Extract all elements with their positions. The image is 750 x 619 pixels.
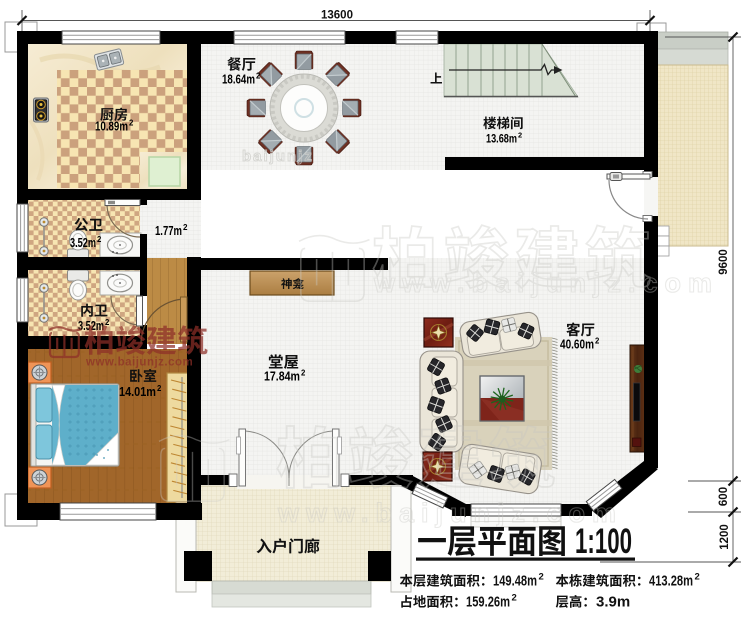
svg-text:2: 2 bbox=[518, 131, 522, 140]
svg-text:40.60m: 40.60m bbox=[560, 338, 594, 352]
svg-text:2: 2 bbox=[695, 572, 700, 583]
svg-text:13600: 13600 bbox=[321, 10, 353, 22]
svg-text:2: 2 bbox=[539, 572, 544, 583]
svg-text:2: 2 bbox=[512, 593, 517, 604]
svg-text:9600: 9600 bbox=[718, 249, 730, 275]
svg-text:1:100: 1:100 bbox=[575, 522, 632, 561]
svg-text:www.baijunjz.com: www.baijunjz.com bbox=[277, 498, 623, 528]
svg-text:2: 2 bbox=[129, 119, 134, 128]
svg-text:3.52m: 3.52m bbox=[70, 236, 96, 250]
svg-text:159.26m: 159.26m bbox=[466, 594, 510, 611]
svg-text:13.68m: 13.68m bbox=[486, 132, 517, 146]
svg-text:2: 2 bbox=[301, 369, 306, 378]
svg-text:18.64m: 18.64m bbox=[222, 73, 255, 87]
svg-text:600: 600 bbox=[718, 487, 730, 506]
svg-text:www.baijunjz.com: www.baijunjz.com bbox=[85, 357, 193, 369]
svg-text:149.48m: 149.48m bbox=[493, 573, 537, 590]
svg-text:1.77m: 1.77m bbox=[155, 223, 182, 238]
svg-text:14.01m: 14.01m bbox=[119, 385, 156, 399]
svg-text:2: 2 bbox=[105, 318, 110, 327]
svg-text:2: 2 bbox=[595, 337, 600, 346]
svg-text:2: 2 bbox=[157, 384, 162, 393]
svg-text:2: 2 bbox=[183, 223, 188, 232]
svg-text:2: 2 bbox=[97, 235, 102, 244]
svg-text:1200: 1200 bbox=[719, 524, 731, 550]
svg-text:baijunjz: baijunjz bbox=[242, 148, 314, 165]
svg-text:www.baijunjz.com: www.baijunjz.com bbox=[373, 268, 719, 298]
svg-text:2: 2 bbox=[256, 72, 261, 81]
svg-text:3.9m: 3.9m bbox=[596, 594, 630, 611]
svg-text:413.28m: 413.28m bbox=[649, 573, 693, 590]
svg-text:17.84m: 17.84m bbox=[264, 370, 300, 384]
svg-text:10.89m: 10.89m bbox=[95, 120, 128, 134]
